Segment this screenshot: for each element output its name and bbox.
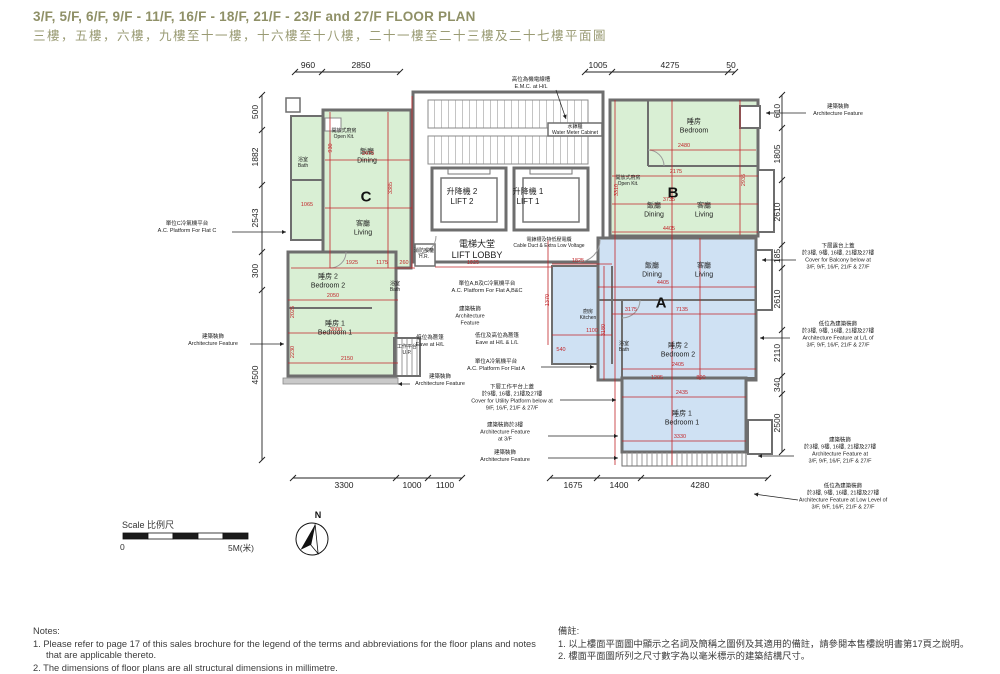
scale-max-label: 5M(米) [228, 542, 254, 554]
callout-annotation: 下層露台上蓋於3樓, 9樓, 16樓, 21樓及27樓Cover for Bal… [802, 244, 874, 273]
label-line: Living [695, 271, 713, 280]
red-dimension-value: 2025 [290, 306, 296, 318]
label-line: 建築裝飾 [188, 334, 238, 341]
callout-annotation: 建築裝飾ArchitectureFeature [455, 306, 484, 327]
label-line: Dining [357, 157, 377, 166]
label-line: Dining [642, 271, 662, 280]
red-dimension-value: 540 [556, 347, 565, 353]
red-dimension-value: 260 [399, 260, 408, 266]
notes-chinese: 備註: 1. 以上樓面平面圖中顯示之名詞及簡稱之圖例及其適用的備註，請參閱本售樓… [558, 626, 990, 663]
red-dimension-value: 7135 [676, 307, 688, 313]
callout-annotation: 下層工作平台上蓋於9樓, 16樓, 21樓及27樓Cover for Utili… [471, 385, 553, 414]
label-line: 3/F, 9/F, 16/F, 21/F & 27/F [804, 459, 876, 466]
label-line: A.C. Platform For Flat A,B&C [452, 288, 523, 295]
label-line: Bedroom [680, 127, 708, 136]
dimension-value: 1882 [250, 148, 260, 167]
callout-annotation: 低位及高位為簷篷Eave at H/L & L/L [475, 333, 519, 347]
label-line: 飯廳 [644, 202, 664, 211]
dimension-value: 500 [250, 105, 260, 119]
label-line: 客廳 [695, 202, 713, 211]
callout-annotation: 高位為機電線槽E.M.C. at H/L [512, 77, 551, 91]
label-line: 建築裝飾 [455, 306, 484, 313]
label-line: 3/F, 9/F, 16/F, 21/F & 27/F [802, 343, 874, 350]
fixture-label: 消防喉轆H.R. [414, 248, 434, 261]
room-label: 升降機 1LIFT 1 [513, 187, 544, 207]
note-item: 2. 樓面平面圖所列之尺寸數字為以毫米標示的建築結構尺寸。 [558, 651, 990, 663]
callout-annotation: 建築裝飾Architecture Feature [480, 450, 530, 464]
label-line: 睡房 2 [661, 342, 695, 351]
label-line: H.R. [414, 254, 434, 260]
label-line: Bedroom 2 [661, 351, 695, 360]
label-line: Living [695, 211, 713, 220]
label-line: 客廳 [695, 262, 713, 271]
label-line: Open Kit. [331, 134, 356, 140]
dimension-value: 1100 [436, 480, 454, 490]
red-dimension-value: 2405 [672, 362, 684, 368]
label-line: Architecture Feature [480, 429, 530, 436]
fixture-label: 廚房Kitchen [580, 309, 597, 322]
notes-english: Notes: 1. Please refer to page 17 of thi… [33, 626, 548, 674]
callout-annotation: 低位為簷篷Eave at H/L [416, 335, 445, 349]
scale-zero-label: 0 [120, 542, 125, 552]
label-line: 單位C冷氣機平台 [158, 221, 217, 228]
scale-label: Scale 比例尺 [122, 518, 174, 531]
dimension-value: 4500 [250, 366, 260, 385]
label-line: 建築裝飾於3樓 [480, 422, 530, 429]
dimension-value: 1000 [403, 480, 422, 490]
label-line: 睡房 1 [665, 410, 699, 419]
label-line: Bath [619, 347, 629, 353]
room-label: 睡房 2Bedroom 2 [661, 342, 695, 360]
label-line: Architecture Feature at [804, 452, 876, 459]
label-line: Feature [455, 321, 484, 328]
dimension-value: 4275 [661, 60, 680, 70]
dimension-value: 340 [772, 378, 782, 392]
red-dimension-value: 2480 [678, 143, 690, 149]
callout-annotation: 建築裝飾Architecture Feature [415, 374, 465, 388]
label-line: Kitchen [580, 315, 597, 321]
label-line: Eave at H/L [416, 342, 445, 349]
fixture-label: 電錶槽及特低壓電纜Cable Duct & Extra Low Voltage [513, 237, 584, 250]
red-dimension-value: 1370 [545, 294, 551, 306]
red-dimension-value: 1205 [651, 375, 663, 381]
label-line: Bath [298, 163, 308, 169]
label-line: Bedroom 1 [665, 419, 699, 428]
dimension-value: 300 [250, 264, 260, 278]
red-dimension-value: 4405 [663, 226, 675, 232]
red-dimension-value: 3735 [663, 197, 675, 203]
note-item: 2. The dimensions of floor plans are all… [33, 663, 548, 674]
label-line: 於9樓, 16樓, 21樓及27樓 [471, 392, 553, 399]
red-dimension-value: 3310 [614, 184, 620, 196]
dimension-value: 3300 [335, 480, 354, 490]
red-dimension-value: 3385 [388, 182, 394, 194]
page: { "title": { "en": "3/F, 5/F, 6/F, 9/F -… [0, 0, 1000, 673]
red-dimension-value: 930 [328, 143, 334, 152]
label-line: 建築裝飾 [813, 104, 863, 111]
label-line: U.P. [397, 350, 417, 356]
notes-heading: Notes: [33, 626, 548, 638]
label-line: Bath [390, 287, 400, 293]
label-line: 升降機 1 [513, 187, 544, 197]
callout-annotation: 建築裝飾Architecture Feature [813, 104, 863, 118]
fixture-label: 水錶櫃Water Meter Cabinet [552, 124, 598, 137]
red-dimension-value: 1175 [376, 260, 388, 266]
red-dimension-value: 3180 [601, 324, 607, 336]
fixture-label: 浴室Bath [298, 157, 308, 170]
dimension-value: 1675 [564, 480, 583, 490]
label-line: Architecture Feature [480, 457, 530, 464]
label-line: Architecture Feature at Low Level of [799, 498, 887, 505]
red-dimension-value: 2175 [670, 169, 682, 175]
callout-annotation: 建築裝飾Architecture Feature [188, 334, 238, 348]
label-line: A.C. Platform For Flat A [467, 366, 525, 373]
dimension-value: 1400 [610, 480, 629, 490]
label-line: 電梯大堂 [452, 239, 503, 250]
label-line: 升降機 2 [447, 187, 478, 197]
red-dimension-value: 2230 [290, 346, 296, 358]
dimension-value: 1005 [589, 60, 608, 70]
room-label: 升降機 2LIFT 2 [447, 187, 478, 207]
label-line: Eave at H/L & L/L [475, 340, 519, 347]
red-dimension-value: 1065 [301, 202, 313, 208]
dimension-value: 2850 [352, 60, 371, 70]
flat-letter-c: C [361, 189, 372, 206]
label-line: Architecture Feature [415, 381, 465, 388]
label-line: Cable Duct & Extra Low Voltage [513, 243, 584, 249]
label-line: A.C. Platform For Flat C [158, 228, 217, 235]
label-line: 於3樓, 9樓, 16樓, 21樓及27樓 [799, 491, 887, 498]
red-dimension-value: 1825 [467, 260, 479, 266]
room-label: 睡房 1Bedroom 1 [665, 410, 699, 428]
red-dimension-value: 1825 [572, 258, 584, 264]
label-line: 建築裝飾 [480, 450, 530, 457]
dimension-value: 1805 [772, 145, 782, 164]
room-label: 睡房 2Bedroom 2 [311, 273, 345, 291]
callout-annotation: 低位為建築裝飾於3樓, 9樓, 16樓, 21樓及27樓Architecture… [802, 322, 874, 351]
dimension-value: 960 [301, 60, 315, 70]
red-dimension-value: 800 [696, 375, 705, 381]
fixture-label: 開放式廚房Open Kit. [331, 128, 356, 141]
red-dimension-value: 2435 [676, 390, 688, 396]
label-line: 於3樓, 9樓, 16樓, 21樓及27樓 [802, 251, 874, 258]
flat-letter-a: A [656, 295, 667, 312]
red-dimension-value: 3175 [625, 307, 637, 313]
fixture-label: 浴室Bath [619, 341, 629, 354]
dimension-value: 2500 [772, 414, 782, 433]
label-line: E.M.C. at H/L [512, 84, 551, 91]
room-label: 電梯大堂LIFT LOBBY [452, 239, 503, 262]
label-line: 低位為簷篷 [416, 335, 445, 342]
red-dimension-value: 1925 [346, 260, 358, 266]
dimension-value: 2610 [772, 290, 782, 309]
north-label: N [315, 510, 322, 520]
label-line: Architecture Feature [813, 111, 863, 118]
callout-annotation: 單位A,B及C冷氣機平台A.C. Platform For Flat A,B&C [452, 281, 523, 295]
label-line: 建築裝飾 [415, 374, 465, 381]
callout-annotation: 建築裝飾於3樓Architecture Featureat 3/F [480, 422, 530, 443]
red-dimension-value: 2935 [741, 174, 747, 186]
room-label: 客廳Living [354, 220, 372, 238]
label-line: Dining [644, 211, 664, 220]
label-line: Bedroom 2 [311, 282, 345, 291]
plan-text-layer: CBA飯廳Dining客廳Living睡房 2Bedroom 2睡房 1Bedr… [0, 0, 1000, 673]
label-line: 飯廳 [642, 262, 662, 271]
label-line: 於3樓, 9樓, 16樓, 21樓及27樓 [802, 329, 874, 336]
label-line: 睡房 [680, 118, 708, 127]
red-dimension-value: 2150 [341, 356, 353, 362]
label-line: Architecture [455, 313, 484, 320]
fixture-label: 工作平台U.P. [397, 344, 417, 357]
label-line: 3/F, 9/F, 16/F, 21/F & 27/F [802, 265, 874, 272]
label-line: 於3樓, 9樓, 16樓, 21樓及27樓 [804, 445, 876, 452]
red-dimension-value: 2475 [362, 151, 374, 157]
fixture-label: 浴室Bath [390, 281, 400, 294]
label-line: Architecture Feature [188, 341, 238, 348]
red-dimension-value: 2050 [327, 293, 339, 299]
callout-annotation: 單位A冷氣機平台A.C. Platform For Flat A [467, 359, 525, 373]
label-line: Architecture Feature at L/L of [802, 336, 874, 343]
label-line: 單位A冷氣機平台 [467, 359, 525, 366]
callout-annotation: 建築裝飾於3樓, 9樓, 16樓, 21樓及27樓Architecture Fe… [804, 438, 876, 467]
label-line: 客廳 [354, 220, 372, 229]
dimension-value: 50 [726, 60, 735, 70]
red-dimension-value: 4405 [657, 280, 669, 286]
label-line: Cover for Balcony below at [802, 258, 874, 265]
room-label: 客廳Living [695, 202, 713, 220]
red-dimension-value: 3000 [330, 327, 342, 333]
room-label: 客廳Living [695, 262, 713, 280]
callout-annotation: 低位為建築裝飾於3樓, 9樓, 16樓, 21樓及27樓Architecture… [799, 484, 887, 513]
red-dimension-value: 3330 [674, 434, 686, 440]
dimension-value: 610 [772, 104, 782, 118]
room-label: 飯廳Dining [644, 202, 664, 220]
dimension-value: 4280 [691, 480, 710, 490]
label-line: LIFT 1 [513, 197, 544, 207]
label-line: 9/F, 16/F, 21/F & 27/F [471, 406, 553, 413]
label-line: 睡房 2 [311, 273, 345, 282]
label-line: 低位及高位為簷篷 [475, 333, 519, 340]
callout-annotation: 單位C冷氣機平台A.C. Platform For Flat C [158, 221, 217, 235]
label-line: 3/F, 9/F, 16/F, 21/F & 27/F [799, 505, 887, 512]
label-line: Water Meter Cabinet [552, 130, 598, 136]
label-line: at 3/F [480, 437, 530, 444]
room-label: 飯廳Dining [642, 262, 662, 280]
label-line: 高位為機電線槽 [512, 77, 551, 84]
dimension-value: 2543 [250, 209, 260, 228]
red-dimension-value: 1100 [586, 328, 598, 334]
label-line: LIFT 2 [447, 197, 478, 207]
notes-heading: 備註: [558, 626, 990, 638]
dimension-value: 2610 [772, 203, 782, 222]
label-line: Cover for Utility Platform below at [471, 399, 553, 406]
label-line: Living [354, 229, 372, 238]
dimension-value: 185 [772, 249, 782, 263]
room-label: 睡房Bedroom [680, 118, 708, 136]
dimension-value: 2110 [772, 344, 782, 362]
note-item: 1. 以上樓面平面圖中顯示之名詞及簡稱之圖例及其適用的備註，請參閱本售樓說明書第… [558, 639, 990, 651]
label-line: 單位A,B及C冷氣機平台 [452, 281, 523, 288]
note-item: 1. Please refer to page 17 of this sales… [33, 639, 548, 662]
